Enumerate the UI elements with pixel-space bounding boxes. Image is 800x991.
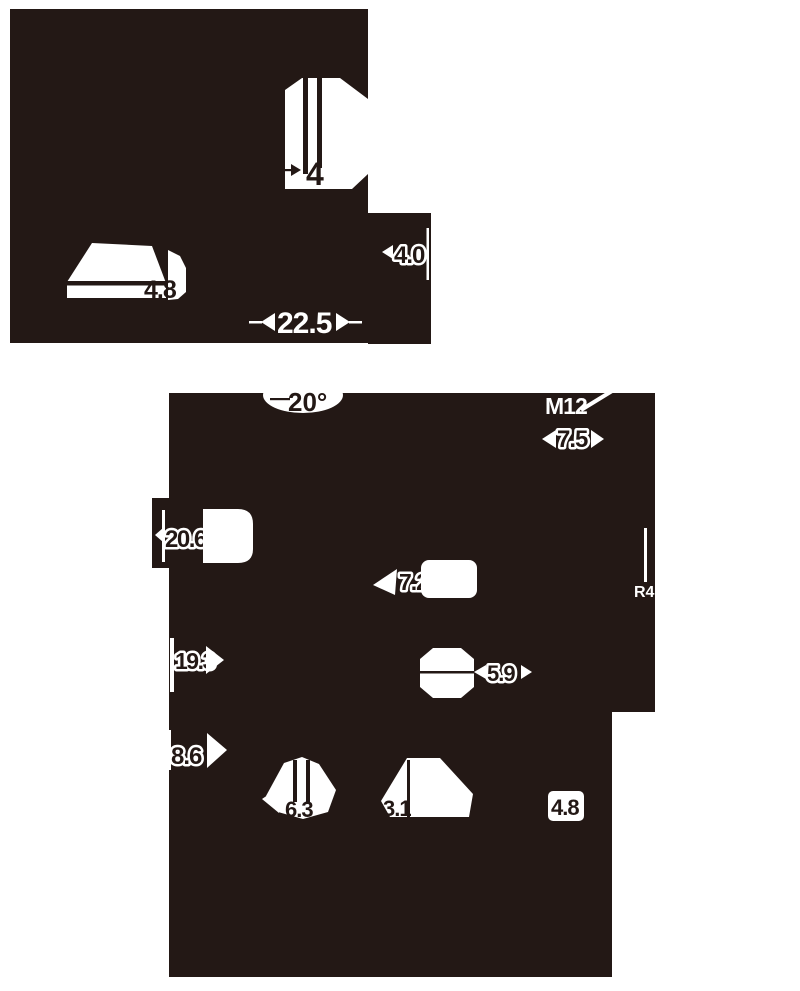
bit-slot-line-right [317,78,322,168]
body-dia-extension-line [170,638,174,692]
panel-main-background [169,393,655,977]
slot-tip-line-right [306,760,310,802]
slot-width-dimension: 4 [306,156,324,192]
slot-tip-width-dimension: 6.3 [285,797,313,822]
panel-main: 20° M12 7.5 20.6 7.2 R4 19.3 5.9 8.6 [152,377,655,977]
angle-leader-line [270,398,290,400]
width-dim-tail-right [349,321,362,324]
neck-diameter-dimension: 8.6 [171,743,202,770]
drawing-page: 4 4.8 22.5 4.0 20° M12 7.5 [0,0,800,991]
hex-end-mid-line [420,671,474,674]
shoulder-profile-shape [421,560,477,598]
blade-width-dimension: 3.1 [383,796,411,821]
head-width-dimension: 22.5 [277,307,332,340]
depth-dimension: 4.0 [394,242,425,269]
thread-length-dimension: 7.5 [557,426,588,453]
slot-tip-line-left [293,760,297,802]
panel-top-left: 4 4.8 22.5 [10,9,396,343]
depth-extension-line [427,228,430,280]
corner-radius-label: R4 [634,584,655,601]
taper-angle-dimension: 20° [288,387,327,417]
technical-drawing: 4 4.8 22.5 4.0 20° M12 7.5 [0,0,800,991]
slot-dim-arrow-tail [285,169,292,171]
tip-width-dimension: 5.9 [487,661,515,686]
panel-side-block-background [368,213,431,344]
button-head-profile-shape [203,509,253,563]
radius-leader-line [644,528,647,582]
thread-size-label: M12 [545,393,587,419]
tip-thickness-dimension: 4.8 [551,795,579,820]
bit-tip-side-view-shape [285,78,396,189]
head-height-dimension: 4.8 [144,276,177,304]
panel-side-block: 4.0 [368,213,431,344]
head-diameter-dimension: 20.6 [165,526,207,553]
width-dim-tail-left [249,321,262,324]
